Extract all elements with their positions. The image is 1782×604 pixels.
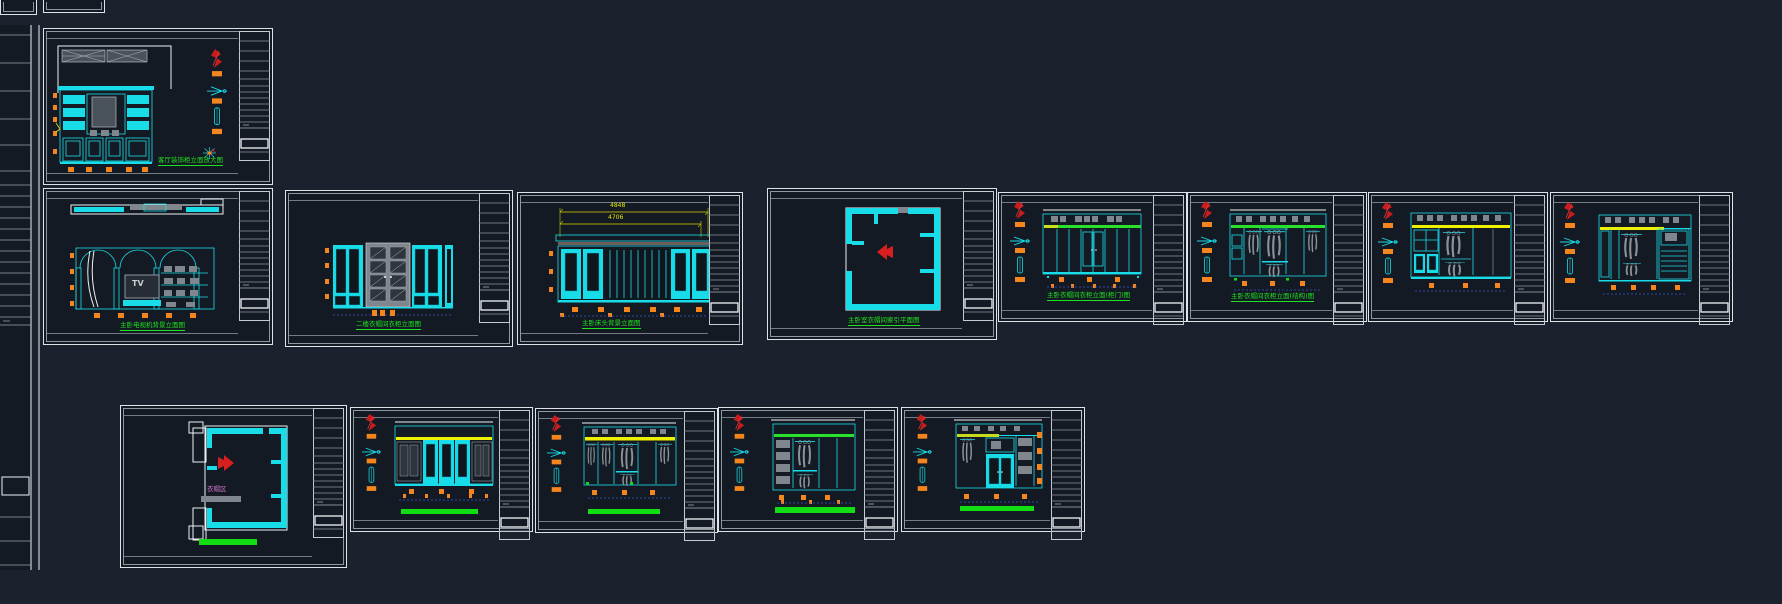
- annotation-markers: [913, 414, 932, 491]
- level-stripe: [396, 437, 492, 440]
- titleblock-column: [1699, 195, 1730, 325]
- hanging-clothes: [1306, 230, 1320, 252]
- hanging-clothes: [600, 443, 613, 466]
- sheet-master-plan[interactable]: 主卧室衣帽间索引平面图: [767, 188, 997, 340]
- level-stripe: [957, 434, 999, 437]
- walls: [207, 428, 287, 528]
- ceiling-mirror-panels: [62, 50, 147, 62]
- titleblock-column: [239, 191, 270, 321]
- sheet-glass-wardrobe-elevation[interactable]: 二楼衣帽间衣柜立面图: [285, 190, 513, 347]
- sheet-wardrobe-doors-elevation[interactable]: 主卧衣帽间衣柜立面(柜门)图: [998, 192, 1187, 322]
- hanging-clothes: [1443, 232, 1465, 257]
- dimension-overall: 4848: [610, 203, 625, 209]
- sheet-caption: 主卧衣帽间衣柜立面(结构)图: [1231, 293, 1314, 302]
- partial-sheet-left-titleblock[interactable]: [0, 25, 42, 570]
- green-bar: [775, 507, 855, 513]
- level-stripe: [1044, 225, 1141, 228]
- wardrobe-cabinet-b-drawing: [904, 410, 1051, 529]
- green-bar: [401, 509, 478, 514]
- top-shelf-items: [1051, 216, 1122, 222]
- sheet-wardrobe-interior-b[interactable]: [718, 407, 898, 532]
- titleblock-column: [684, 411, 715, 541]
- hanging-clothes: [658, 443, 672, 463]
- sheet-wardrobe-structure-b[interactable]: [535, 408, 718, 533]
- level-stripe: [1412, 225, 1510, 228]
- dimension-ticks: [1611, 285, 1680, 290]
- dimension-ticks: [1051, 277, 1136, 288]
- top-shelf-items: [1605, 217, 1679, 223]
- dimension-lines: [560, 212, 708, 224]
- annotation-markers: [362, 414, 381, 491]
- sheet-caption: 主卧电视机背景立面图: [120, 322, 185, 331]
- index-arrow-icon: [877, 244, 893, 260]
- tv-label: TV: [132, 280, 144, 288]
- titleblock-column: [239, 31, 270, 161]
- dimension-ticks: [779, 495, 840, 504]
- dimension-ticks: [403, 489, 488, 498]
- bench: [201, 496, 241, 502]
- annotation-markers: [1197, 201, 1217, 282]
- sheet-wardrobe-elevation-d[interactable]: [1550, 192, 1733, 322]
- dimension-ticks: [1242, 281, 1305, 286]
- sheet-caption: 主卧室衣帽间索引平面图: [848, 317, 920, 326]
- cad-canvas[interactable]: { "canvas": {"background_color": "#1b212…: [0, 0, 1782, 604]
- sheet-bookcase-elevation[interactable]: 客厅装饰柜立面放大图: [43, 28, 273, 185]
- dimension-inner: 4706: [608, 215, 623, 221]
- top-shelf-items: [1236, 216, 1310, 222]
- sheet-wardrobe-elevation-c[interactable]: [1368, 192, 1548, 322]
- decor-items: [90, 130, 119, 136]
- green-bar: [960, 506, 1034, 511]
- cabinet-doors: [63, 138, 149, 161]
- sheet-caption: 客厅装饰柜立面放大图: [158, 157, 223, 166]
- partial-sheet-top-left[interactable]: [0, 0, 37, 15]
- titleblock-column: [864, 410, 895, 540]
- titleblock-column: [1514, 195, 1545, 325]
- level-stripe: [1600, 227, 1664, 230]
- green-bar: [199, 539, 257, 545]
- titleblock-column: [479, 193, 510, 323]
- sheet-cloakroom-plan[interactable]: 衣帽区: [120, 405, 347, 568]
- index-arrow-icon: [218, 455, 234, 471]
- titleblock-column: [963, 191, 994, 321]
- sheet-headboard-elevation[interactable]: 4848 4706 主卧床头背景立面图: [517, 192, 743, 345]
- side-shelf-items: [776, 440, 790, 484]
- annotation-markers: [1010, 201, 1030, 282]
- wardrobe-d-drawing: [1553, 195, 1699, 319]
- wardrobe-interior-b-drawing: [721, 410, 864, 529]
- level-stripe: [774, 434, 854, 437]
- room-outline: [205, 426, 287, 530]
- hanging-clothes: [1623, 263, 1641, 276]
- top-shelf-items: [592, 429, 666, 434]
- annotation-markers: [1560, 202, 1580, 283]
- hanging-clothes: [960, 438, 975, 462]
- arches: [80, 250, 196, 268]
- level-stripe: [585, 437, 675, 441]
- wardrobe-structure-b-drawing: [538, 411, 684, 530]
- room-outline: [846, 208, 940, 310]
- sheet-caption: 二楼衣帽间衣柜立面图: [356, 321, 421, 330]
- top-shelf-items: [1417, 215, 1501, 221]
- top-shelf-items: [962, 426, 1020, 431]
- picture-panel: [92, 97, 116, 127]
- annotation-markers: [730, 414, 749, 491]
- hanging-clothes: [1445, 262, 1465, 276]
- partial-sheet-top[interactable]: [43, 0, 105, 13]
- sheet-wardrobe-structure-elevation[interactable]: 主卧衣帽间衣柜立面(结构)图: [1187, 192, 1367, 322]
- door-leaf: [898, 209, 908, 213]
- wardrobe-doors-b-drawing: [353, 410, 499, 529]
- hanging-clothes: [1264, 231, 1285, 259]
- titleblock-column: [313, 408, 344, 538]
- hanging-clothes: [797, 474, 813, 488]
- hanging-clothes: [586, 443, 597, 465]
- walls: [846, 208, 940, 310]
- titleblock-column: [1333, 195, 1364, 325]
- sheet-wardrobe-doors-b[interactable]: [350, 407, 533, 532]
- titleblock-column: [1051, 410, 1082, 540]
- hanging-clothes: [1621, 234, 1642, 259]
- titleblock-column: [1153, 195, 1184, 325]
- level-stripe: [1231, 225, 1325, 228]
- titleblock-column: [499, 410, 530, 540]
- dimension-ticks: [1429, 283, 1500, 288]
- hanging-clothes: [1266, 264, 1283, 277]
- annotation-markers: [547, 415, 566, 492]
- side-shelf-items: [1018, 438, 1032, 474]
- green-bar: [588, 509, 660, 514]
- curtain: [88, 251, 98, 307]
- dimension-ticks: [592, 490, 655, 495]
- room-label: 衣帽区: [207, 486, 227, 493]
- sheet-caption: 主卧床头背景立面图: [582, 320, 641, 329]
- wardrobe-c-drawing: [1371, 195, 1514, 319]
- sheet-wardrobe-cabinet-b[interactable]: [901, 407, 1085, 532]
- hanging-clothes: [1246, 230, 1262, 254]
- hanging-clothes: [618, 444, 637, 469]
- annotation-markers: [207, 49, 227, 134]
- tv-wall-drawing: [46, 191, 239, 342]
- hanging-clothes: [795, 441, 815, 468]
- sheet-tv-wall-elevation[interactable]: TV 主卧电视机背景立面图: [43, 188, 273, 345]
- sheet-caption: 主卧衣帽间衣柜立面(柜门)图: [1047, 292, 1130, 301]
- annotation-markers: [1378, 202, 1398, 283]
- titleblock-column: [709, 195, 740, 325]
